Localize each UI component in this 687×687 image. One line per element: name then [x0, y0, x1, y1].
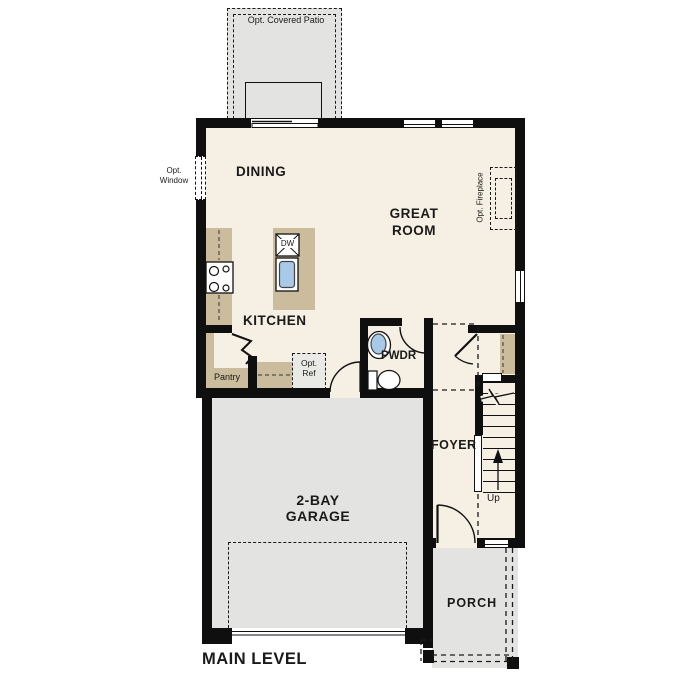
porch-window: [484, 539, 509, 548]
kitchen-label: KITCHEN: [243, 313, 307, 328]
sliding-door: [251, 119, 318, 128]
wall-pantry-right: [248, 356, 257, 390]
kitchen-counter-hall: [257, 362, 292, 388]
wall-kitchen-bottom: [196, 388, 433, 398]
opt-window-symbol: [195, 156, 206, 200]
opt-window-label: Opt. Window: [155, 166, 193, 186]
porch-post-left: [423, 650, 434, 663]
opt-window-label-line2: Window: [155, 176, 193, 186]
garage-label-line2: GARAGE: [285, 508, 351, 524]
opt-ref-label-line2: Ref: [292, 368, 326, 378]
opt-window-label-line1: Opt.: [155, 166, 193, 176]
great-room-label: GREAT ROOM: [383, 205, 445, 239]
window-midline: [442, 124, 473, 125]
wall-stair-left: [475, 375, 483, 435]
garage-post-left: [202, 628, 232, 644]
garage-entry-opening: [330, 388, 360, 398]
wall-garage-right: [423, 390, 433, 648]
window-top-2: [441, 119, 474, 128]
foyer-label: FOYER: [431, 438, 477, 452]
porch-post-right: [507, 657, 519, 669]
dw-label: DW: [277, 239, 298, 248]
great-room-label-line1: GREAT: [383, 205, 445, 222]
stairs-up-label: Up: [487, 493, 500, 504]
dining-label: DINING: [236, 164, 286, 179]
wall-garage-left: [202, 390, 212, 632]
opt-ref-label-line1: Opt.: [292, 358, 326, 368]
opt-fireplace-box-inner: [495, 178, 512, 219]
wall-entry-closet-top: [468, 325, 523, 333]
staircase-treads: [483, 383, 515, 493]
window-midline: [485, 544, 508, 545]
plan-title: MAIN LEVEL: [202, 650, 307, 669]
great-room-label-line2: ROOM: [383, 222, 445, 239]
entry-closet-shelf: [500, 334, 515, 374]
wall-pwdr-right: [424, 318, 433, 398]
garage-post-right: [405, 628, 433, 644]
wall-pantry-top: [196, 325, 232, 333]
garage-label-line1: 2-BAY: [285, 492, 351, 508]
window-midline: [404, 124, 435, 125]
window-midline: [520, 271, 521, 302]
wall-pwdr-top: [360, 318, 402, 326]
opt-fireplace-label: Opt. Fireplace: [476, 163, 485, 233]
window-midline: [201, 157, 202, 199]
garage-apron-dashed: [228, 542, 407, 628]
front-door-opening: [436, 538, 477, 548]
floor-plan: Opt. Covered Patio Opt. Window DINING GR…: [0, 0, 687, 687]
dw-label-text: DW: [280, 239, 295, 248]
kitchen-counter-left: [206, 228, 232, 325]
window-top-1: [403, 119, 436, 128]
opt-ref-label: Opt. Ref: [292, 358, 326, 378]
garage-door-panel: [232, 628, 405, 638]
porch-label: PORCH: [447, 596, 497, 610]
stair-niche-window: [482, 373, 502, 382]
wall-pwdr-left: [360, 318, 368, 398]
garage-label: 2-BAY GARAGE: [285, 492, 351, 524]
patio-step: [245, 82, 322, 119]
pantry-label: Pantry: [214, 372, 240, 382]
window-right: [515, 270, 525, 303]
patio-label: Opt. Covered Patio: [240, 15, 332, 25]
pwdr-label: PWDR: [381, 350, 416, 362]
wall-top: [196, 118, 525, 128]
